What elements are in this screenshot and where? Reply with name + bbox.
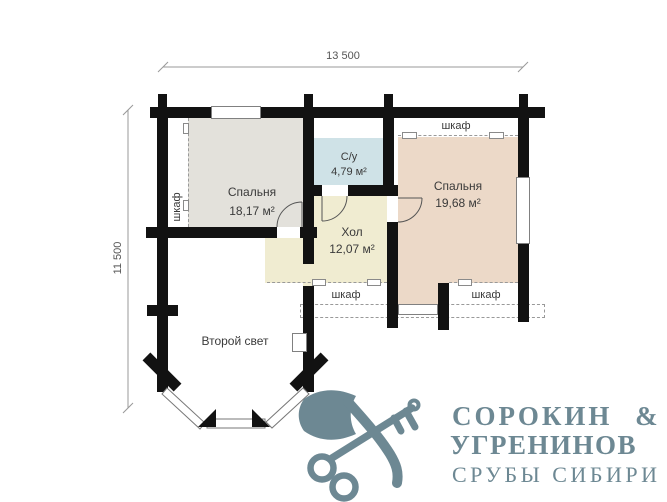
log-end-stub (384, 94, 393, 131)
room-label-bedroom2-area: 19,68 м² (435, 196, 481, 210)
room-label-bathroom-area: 4,79 м² (331, 166, 367, 178)
log-end-stub (519, 94, 528, 131)
bay-window-center (207, 419, 265, 428)
wall-segment (387, 222, 398, 328)
dimension-label-height: 11 500 (112, 242, 124, 275)
window-bedroom2 (516, 177, 530, 244)
dash-mark (183, 123, 189, 134)
logo-text-line2: УГРЕНИНОВ (450, 430, 637, 461)
radiator-box (292, 333, 307, 352)
dimension-tick (123, 403, 133, 413)
wall-segment (314, 185, 322, 196)
key-icon (311, 401, 419, 499)
log-end-stub (158, 94, 167, 131)
room-label-hall-area: 12,07 м² (329, 242, 375, 256)
axe-handle (348, 402, 398, 483)
logo-text-line1: СОРОКИН & (452, 401, 661, 432)
wall-segment (303, 238, 314, 264)
axe-icon (299, 390, 356, 439)
logo-text-line3: СРУБЫ СИБИРИ (452, 462, 660, 488)
dash-mark (312, 279, 326, 286)
dimension-tick (518, 62, 528, 72)
room-label-bedroom1-name: Спальня (228, 185, 276, 199)
dimension-tick (123, 105, 133, 115)
wall-segment (157, 107, 168, 392)
wall-segment (146, 227, 277, 238)
room-label-bathroom-name: С/у (341, 151, 358, 163)
closet-label-top-right: шкаф (441, 120, 470, 132)
dash-mark (367, 279, 381, 286)
room-fill-hall (314, 196, 387, 283)
wall-segment (438, 283, 449, 330)
window-bottom-opening (398, 304, 438, 315)
room-label-bedroom2-name: Спальня (434, 179, 482, 193)
closet-label-bottom-right: шкаф (471, 289, 500, 301)
dimension-label-width: 13 500 (326, 50, 360, 62)
dash-mark (458, 279, 472, 286)
log-end-stub (304, 94, 313, 131)
bay-corner-wedge (252, 409, 270, 427)
door-gap-bedroom1 (277, 227, 300, 238)
dash-mark (402, 132, 417, 139)
wall-segment (150, 107, 545, 118)
bay-window-left (162, 388, 205, 429)
door-gap-bathroom (322, 185, 348, 196)
room-fill-bedroom2-ext (398, 283, 438, 305)
room-label-bedroom1-area: 18,17 м² (229, 204, 275, 218)
log-end-stub (529, 107, 545, 118)
dash-mark (489, 132, 504, 139)
bay-window-right (266, 388, 309, 428)
wall-segment (348, 185, 398, 196)
bay-corner-wedge (198, 409, 216, 427)
window-bedroom1 (211, 106, 261, 119)
dash-mark (183, 200, 189, 211)
room-label-hall-name: Хол (341, 225, 362, 239)
room-fill-bedroom2 (398, 137, 518, 283)
closet-label-bottom-left: шкаф (331, 289, 360, 301)
floor-plan-page: 13 500 11 500 Спальня 18,17 м² С/у 4,79 … (0, 0, 667, 502)
bay-window (143, 353, 329, 429)
room-label-second-light: Второй свет (201, 334, 268, 348)
dimension-tick (158, 62, 168, 72)
closet-label-left: шкаф (171, 192, 183, 221)
log-end-stub (147, 305, 178, 316)
